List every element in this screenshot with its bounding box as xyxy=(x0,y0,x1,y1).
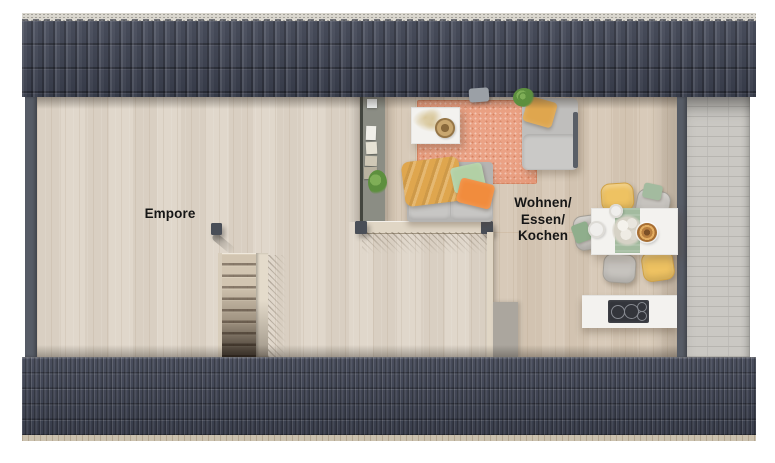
floor-bottom-shadow xyxy=(37,345,677,357)
daybed-duvet xyxy=(523,134,577,169)
roof-slope-bottom xyxy=(22,357,756,436)
round-tray xyxy=(435,118,455,138)
room-label-living-line3: Kochen xyxy=(503,228,583,245)
roof-slope-top xyxy=(22,21,756,97)
room-label-empore: Empore xyxy=(130,206,210,221)
roof-shadow-on-floor xyxy=(37,97,677,109)
book-spine xyxy=(366,142,378,155)
roof-ridge-cap xyxy=(22,13,756,21)
stair-stringer-right xyxy=(256,253,268,357)
staircase-treads xyxy=(222,253,256,358)
room-label-living-line1: Wohnen/ xyxy=(503,195,583,212)
eave-strip xyxy=(22,435,756,441)
daybed-plant-leaf xyxy=(518,92,530,103)
exterior-wall-left xyxy=(25,97,37,357)
gray-cloth xyxy=(469,87,490,102)
plate xyxy=(588,221,605,238)
dining-chair-gray xyxy=(602,253,637,284)
food-platter xyxy=(637,223,657,242)
stair-shadow-hatch xyxy=(268,255,286,357)
room-label-living-line2: Essen/ xyxy=(503,212,583,229)
burner-ring xyxy=(611,305,625,319)
burner-ring xyxy=(637,311,647,321)
room-label-living: Wohnen/ Essen/ Kochen xyxy=(503,195,583,245)
partition-wall-shadow xyxy=(348,97,360,222)
shelf-plant xyxy=(368,170,387,195)
stair-newel-post xyxy=(211,223,222,235)
book-spine xyxy=(366,126,376,140)
knee-wall-post-left xyxy=(355,221,367,234)
balcony-tiles xyxy=(687,97,750,358)
book-spine xyxy=(365,156,377,166)
daybed-frame-edge xyxy=(573,112,578,168)
knee-wall-shadow-hatch xyxy=(362,232,493,254)
exterior-wall-right xyxy=(677,97,687,358)
attic-floorplan: Empore Wohnen/ Essen/ Kochen xyxy=(0,0,775,463)
